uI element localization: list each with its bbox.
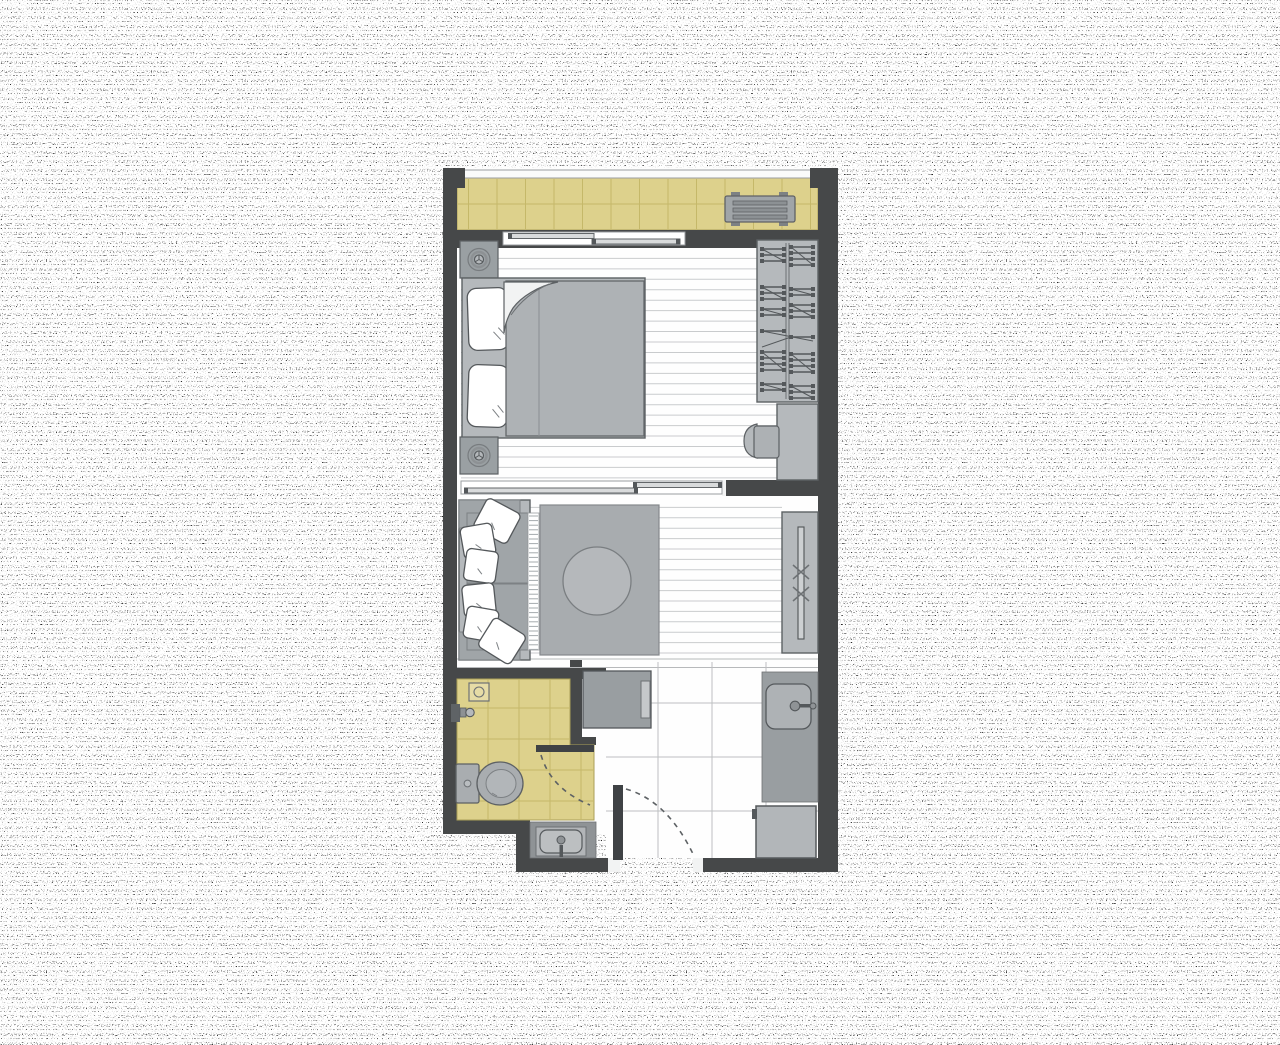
wall-right xyxy=(818,170,838,872)
page xyxy=(0,0,1280,1045)
partition-panel xyxy=(635,483,721,488)
vanity-drain xyxy=(557,836,565,844)
shower-arm xyxy=(460,708,466,717)
toilet-button xyxy=(464,780,471,787)
floor-drain xyxy=(469,683,489,701)
ac-unit xyxy=(725,192,795,226)
vanity xyxy=(530,822,596,858)
fridge xyxy=(752,806,816,858)
closet-handle xyxy=(641,681,650,718)
nightstand-bottom xyxy=(460,437,498,474)
wall-vanity-bottom xyxy=(516,858,608,872)
desk xyxy=(777,404,818,480)
sofa-throw xyxy=(528,513,539,650)
shower-knob xyxy=(466,708,474,716)
wall-bathroom-door-head xyxy=(570,737,596,745)
window-panel-cap xyxy=(592,239,596,245)
bed-pillow xyxy=(467,287,509,350)
pillow-shape xyxy=(463,548,499,584)
partition-jamb xyxy=(722,480,726,496)
faucet-knob xyxy=(810,703,816,709)
pillow-shape xyxy=(467,287,509,350)
window-panel-cap xyxy=(508,233,512,239)
chair-seat xyxy=(754,426,779,458)
fridge-handle xyxy=(752,809,757,819)
wall-bathroom-right-upper xyxy=(570,660,582,745)
floor-plan xyxy=(0,0,1280,1045)
nightstand-top xyxy=(460,241,498,278)
tv-console xyxy=(782,512,818,653)
entry-door-jamb-left xyxy=(608,858,620,872)
fridge-body xyxy=(756,806,816,858)
bedroom-window xyxy=(503,232,685,245)
window-panel xyxy=(510,234,594,239)
toilet xyxy=(456,762,523,805)
balcony-railing xyxy=(461,170,812,178)
bed xyxy=(462,278,645,438)
shower-mount xyxy=(451,704,460,722)
partition-panel-cap xyxy=(634,488,638,494)
partition-sliding-door xyxy=(461,481,722,494)
sofa xyxy=(459,497,539,665)
entry-counter xyxy=(762,672,818,802)
wall-partition-right xyxy=(726,480,818,496)
bed-blanket xyxy=(506,281,644,436)
ac-slat xyxy=(733,208,787,212)
bed-pillow xyxy=(467,364,509,427)
wall-left xyxy=(443,170,457,834)
entry-door-jamb-right xyxy=(693,858,703,872)
wall-bottom-right xyxy=(703,858,838,872)
pillow-shape xyxy=(467,364,509,427)
balcony xyxy=(457,170,818,230)
round-coffee-table xyxy=(563,547,631,615)
faucet-base xyxy=(790,701,800,711)
vanity-faucet xyxy=(560,845,564,857)
entry-door-leaf xyxy=(613,785,623,860)
window-panel xyxy=(592,239,680,244)
wardrobe xyxy=(757,240,818,402)
partition-panel xyxy=(466,488,636,493)
entry-closet xyxy=(583,671,651,728)
bathroom-door-leaf xyxy=(536,745,594,752)
partition-panel-cap xyxy=(718,482,722,488)
drain-plate xyxy=(469,683,489,701)
ac-slat xyxy=(733,201,787,205)
toilet-bowl-inner xyxy=(486,770,516,798)
partition-panel-cap xyxy=(464,488,468,494)
partition-panel-cap xyxy=(633,482,637,488)
ac-slat xyxy=(733,215,787,219)
tv xyxy=(798,527,804,639)
window-panel-cap xyxy=(676,239,680,245)
sofa-pillow xyxy=(463,548,499,584)
